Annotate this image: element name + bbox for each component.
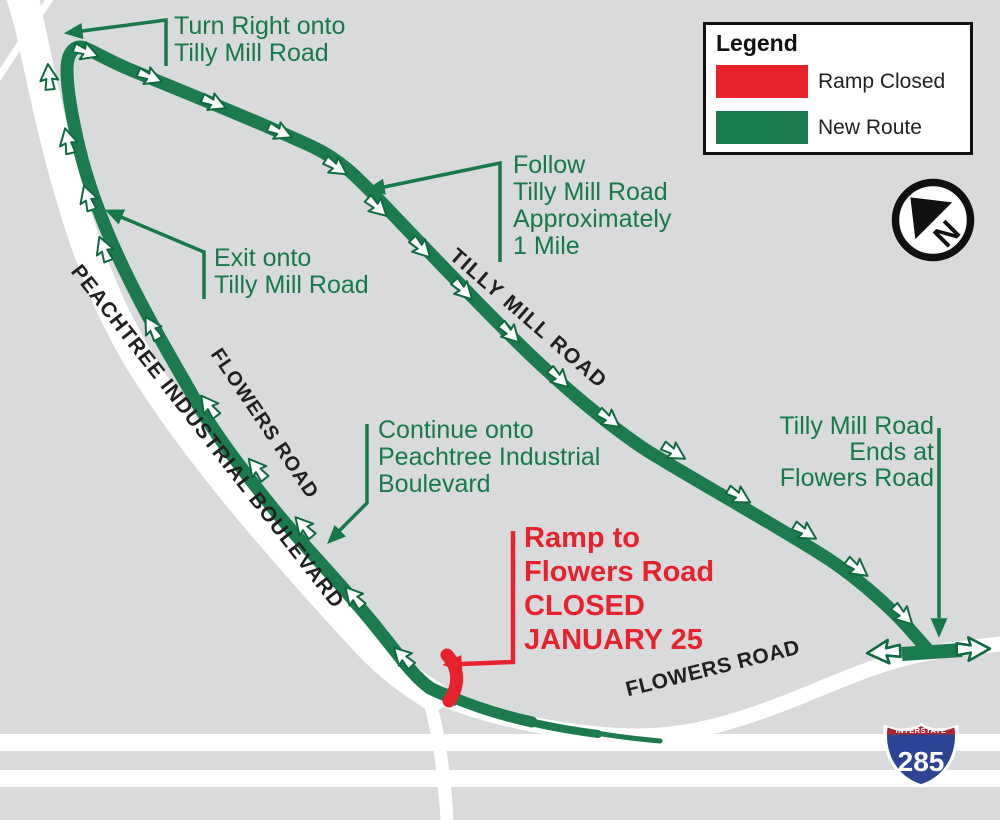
- north-compass-icon: N: [889, 176, 977, 264]
- annotation-line: Exit onto: [214, 245, 369, 272]
- closure-line: JANUARY 25: [524, 623, 714, 657]
- annotation-line: Turn Right onto: [174, 13, 345, 40]
- annotation-ramp-closed: Ramp to Flowers Road CLOSED JANUARY 25: [524, 521, 714, 657]
- new-route-swatch: [716, 111, 808, 144]
- annotation-continue: Continue onto Peachtree Industrial Boule…: [378, 417, 600, 498]
- legend-panel: Legend Ramp Closed New Route: [703, 22, 973, 155]
- annotation-line: 1 Mile: [513, 233, 671, 260]
- legend-item-label: Ramp Closed: [818, 70, 945, 94]
- annotation-route-ends: Tilly Mill Road Ends at Flowers Road: [779, 413, 934, 491]
- legend-item-ramp-closed: Ramp Closed: [716, 65, 970, 98]
- detour-map: INTERSTATE 285 PEACHTREE INDUSTRIAL BOUL…: [0, 0, 1000, 820]
- ramp-closed-swatch: [716, 65, 808, 98]
- closure-line: CLOSED: [524, 589, 714, 623]
- legend-item-label: New Route: [818, 116, 922, 140]
- legend-title: Legend: [716, 30, 970, 57]
- annotation-line: Tilly Mill Road: [214, 272, 369, 299]
- annotation-line: Tilly Mill Road: [779, 413, 934, 439]
- annotation-line: Approximately: [513, 206, 671, 233]
- legend-item-new-route: New Route: [716, 111, 970, 144]
- annotation-line: Ends at: [779, 439, 934, 465]
- shield-number-text: 285: [898, 746, 945, 777]
- annotation-line: Follow: [513, 152, 671, 179]
- annotation-exit: Exit onto Tilly Mill Road: [214, 245, 369, 299]
- closure-line: Ramp to: [524, 521, 714, 555]
- annotation-turn-right: Turn Right onto Tilly Mill Road: [174, 13, 345, 67]
- annotation-line: Peachtree Industrial: [378, 444, 600, 471]
- annotation-line: Flowers Road: [779, 465, 934, 491]
- annotation-line: Tilly Mill Road: [174, 40, 345, 67]
- shield-interstate-text: INTERSTATE: [896, 726, 947, 735]
- annotation-line: Boulevard: [378, 471, 600, 498]
- annotation-line: Continue onto: [378, 417, 600, 444]
- annotation-line: Tilly Mill Road: [513, 179, 671, 206]
- closure-line: Flowers Road: [524, 555, 714, 589]
- annotation-follow: Follow Tilly Mill Road Approximately 1 M…: [513, 152, 671, 260]
